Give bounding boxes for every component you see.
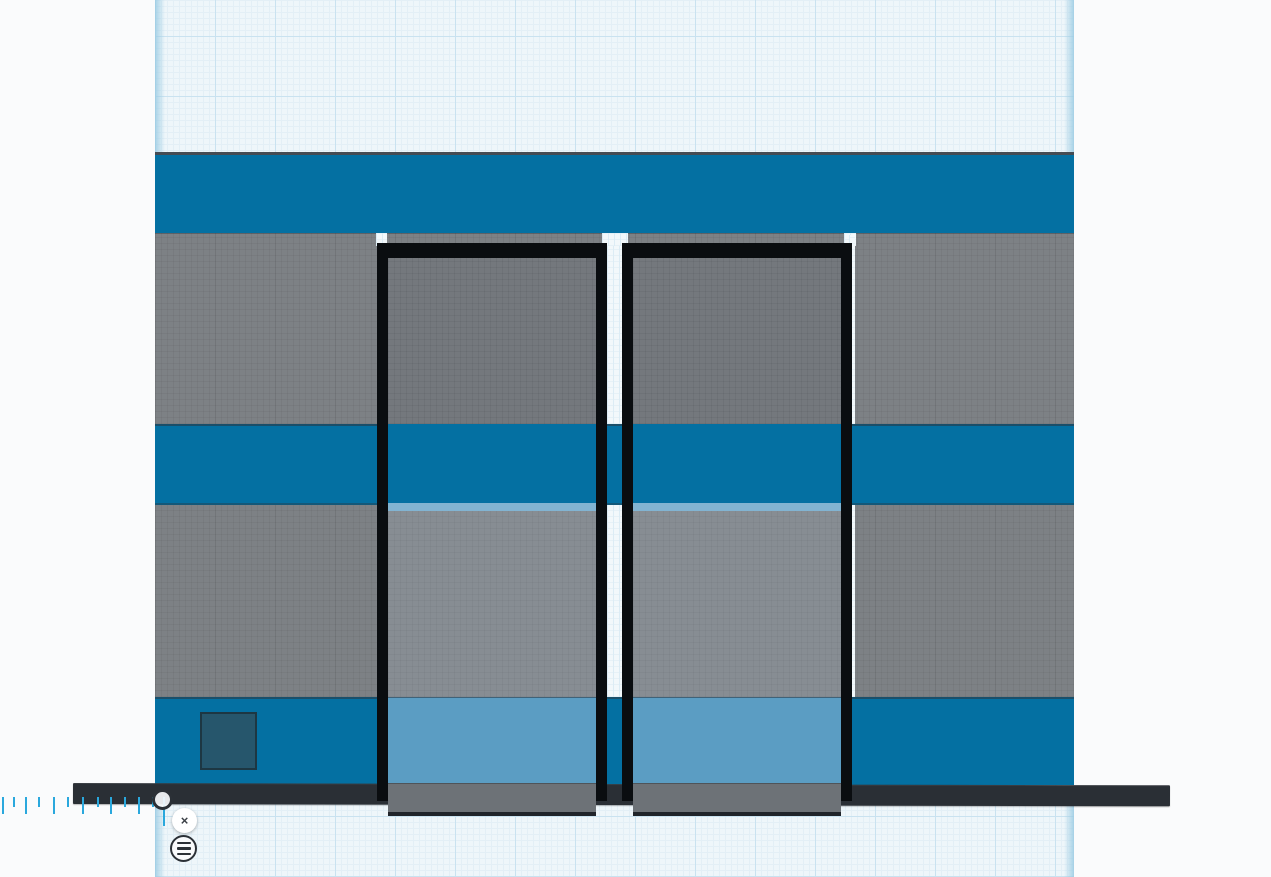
building-band-blue-middle[interactable] [155, 424, 1074, 505]
ruler-tick [110, 797, 112, 814]
background-gap [607, 505, 623, 697]
background-gap [607, 246, 623, 424]
door-glass-lower [633, 511, 841, 697]
door-right[interactable] [622, 243, 852, 801]
door-glass-bottom [388, 697, 596, 783]
door-glass-top-edge [633, 503, 841, 511]
door-glass-rail-tint [388, 783, 596, 816]
building-band-blue-bottom[interactable] [155, 697, 1074, 785]
wall-panel-square[interactable] [200, 712, 257, 770]
door-glass-lower [388, 511, 596, 697]
ruler-menu-button[interactable] [170, 835, 197, 862]
hamburger-menu-icon [177, 842, 191, 845]
door-frame-top [377, 243, 607, 258]
ruler-tick [67, 797, 69, 807]
building-band-blue-top[interactable] [155, 152, 1074, 233]
ruler-close-button[interactable]: × [172, 808, 197, 833]
ruler-tick [53, 797, 55, 814]
ruler-origin-handle[interactable] [152, 789, 173, 810]
door-blue-band [388, 424, 596, 503]
ruler-tick [2, 797, 4, 814]
door-left[interactable] [377, 243, 607, 801]
ruler-tick [82, 797, 84, 814]
door-frame-right [596, 243, 607, 801]
close-icon: × [181, 814, 189, 827]
door-glass [633, 258, 841, 801]
door-frame-left [622, 243, 633, 801]
door-blue-band [633, 424, 841, 503]
door-glass-top-edge [388, 503, 596, 511]
door-glass-upper [388, 258, 596, 424]
door-glass-bottom [633, 697, 841, 783]
door-frame-top [622, 243, 852, 258]
door-glass-rail-tint [633, 783, 841, 816]
ruler-tick [138, 797, 140, 814]
ruler-tick [97, 797, 99, 807]
ruler-tick [25, 797, 27, 814]
door-glass [388, 258, 596, 801]
door-glass-upper [633, 258, 841, 424]
door-frame-left [377, 243, 388, 801]
door-frame-right [841, 243, 852, 801]
ruler-tick [38, 797, 40, 807]
ruler-tick [13, 797, 15, 807]
ruler-tick [124, 797, 126, 807]
design-canvas: × [0, 0, 1271, 877]
